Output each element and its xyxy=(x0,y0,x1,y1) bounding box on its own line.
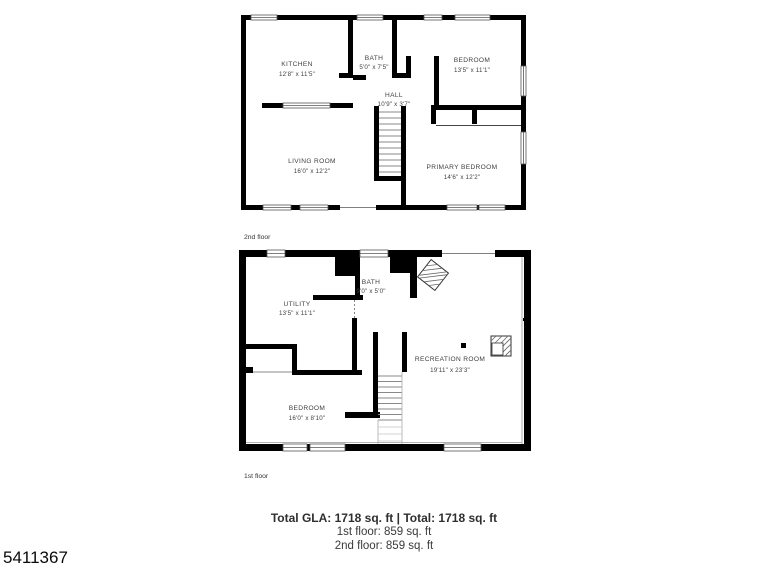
room-bedroom2-dims: 13'5" x 11'1" xyxy=(454,67,490,74)
hvac-unit-icon xyxy=(418,260,449,291)
room-recreation-dims: 19'11" x 23'3" xyxy=(430,367,470,374)
room-recreation-label: RECREATION ROOM xyxy=(415,356,485,363)
second-floor-area-line: 2nd floor: 859 sq. ft xyxy=(0,539,768,553)
floor-label-1st: 1st floor xyxy=(244,473,269,480)
first-floor-area-line: 1st floor: 859 sq. ft xyxy=(0,525,768,539)
room-utility-dims: 13'5" x 11'1" xyxy=(279,310,315,317)
listing-id: 5411367 xyxy=(3,548,68,568)
room-bath2-dims: 5'0" x 7'5" xyxy=(359,64,388,71)
room-bath1-dims: 9'0" x 5'0" xyxy=(356,288,385,295)
room-living-label: LIVING ROOM xyxy=(288,158,336,165)
room-kitchen-dims: 12'8" x 11'5" xyxy=(279,71,315,78)
floor-label-2nd: 2nd floor xyxy=(244,234,271,241)
floor-plan-1st: BATH 9'0" x 5'0" UTILITY 13'5" x 11'1" R… xyxy=(239,250,531,480)
room-bedroom1-label: BEDROOM xyxy=(289,405,326,412)
room-bedroom1-dims: 16'0" x 8'10" xyxy=(289,415,326,422)
walls-1st-exterior xyxy=(239,250,531,451)
staircase-2nd xyxy=(379,112,401,172)
room-kitchen-label: KITCHEN xyxy=(281,61,312,68)
room-hall-label: HALL xyxy=(385,92,403,99)
floorplan-page: KITCHEN 12'8" x 11'5" BATH 5'0" x 7'5" B… xyxy=(0,0,768,576)
room-primary-dims: 14'6" x 12'2" xyxy=(444,174,481,181)
floor-plan-2nd: KITCHEN 12'8" x 11'5" BATH 5'0" x 7'5" B… xyxy=(241,15,526,241)
room-bedroom2-label: BEDROOM xyxy=(454,57,491,64)
room-living-dims: 16'0" x 12'2" xyxy=(294,168,331,175)
area-summary: Total GLA: 1718 sq. ft | Total: 1718 sq.… xyxy=(0,511,768,553)
room-utility-label: UTILITY xyxy=(284,301,311,308)
fireplace-icon xyxy=(491,336,511,356)
room-primary-label: PRIMARY BEDROOM xyxy=(427,164,498,171)
staircase-1st xyxy=(378,372,402,444)
room-hall-dims: 10'9" x 3'7" xyxy=(378,101,411,108)
room-bath1-label: BATH xyxy=(362,279,381,286)
floorplan-drawing: KITCHEN 12'8" x 11'5" BATH 5'0" x 7'5" B… xyxy=(0,0,768,576)
room-bath2-label: BATH xyxy=(365,55,384,62)
walls-1st-interior xyxy=(239,252,526,449)
total-gla-line: Total GLA: 1718 sq. ft | Total: 1718 sq.… xyxy=(0,511,768,525)
